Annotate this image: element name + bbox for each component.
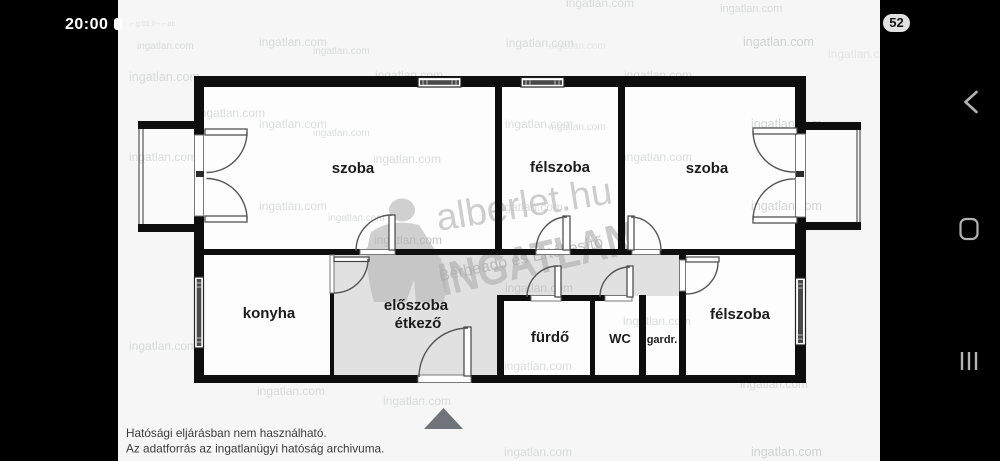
svg-text:ingatlan.com: ingatlan.com — [137, 41, 194, 52]
svg-text:ingatlan.com: ingatlan.com — [720, 3, 782, 15]
svg-text:ingatlan.com: ingatlan.com — [624, 150, 692, 164]
svg-text:ingatlan.com: ingatlan.com — [129, 70, 200, 84]
svg-text:félszoba: félszoba — [530, 159, 591, 176]
svg-text:ingatlan.com: ingatlan.com — [197, 106, 265, 120]
svg-text:Az adatforrás az ingatlanügyi: Az adatforrás az ingatlanügyi hatóság ar… — [126, 442, 384, 456]
svg-text:ingatlan.com: ingatlan.com — [751, 199, 822, 213]
svg-text:ingatlan.com: ingatlan.com — [751, 445, 822, 459]
svg-text:ingatlan.com: ingatlan.com — [504, 359, 572, 373]
svg-text:⌐ g:01.0¬ ⌐ ab: ⌐ g:01.0¬ ⌐ ab — [130, 21, 175, 28]
svg-text:előszoba: előszoba — [384, 297, 449, 314]
svg-text:félszoba: félszoba — [710, 306, 771, 323]
svg-text:konyha: konyha — [243, 305, 296, 322]
svg-text:Hatósági eljárásban nem haszná: Hatósági eljárásban nem használható. — [126, 426, 327, 440]
svg-text:étkező: étkező — [395, 315, 442, 332]
svg-text:ingatlan.com: ingatlan.com — [313, 46, 370, 57]
svg-text:szoba: szoba — [332, 160, 375, 177]
svg-text:ingatlan.com: ingatlan.com — [313, 128, 370, 139]
svg-text:ingatlan.com: ingatlan.com — [259, 199, 327, 213]
svg-text:ingatlan.com: ingatlan.com — [373, 152, 441, 166]
svg-text:ingatlan.com: ingatlan.com — [257, 384, 325, 398]
svg-text:gardr.: gardr. — [647, 334, 678, 346]
svg-text:ingatlan.com: ingatlan.com — [129, 339, 197, 353]
svg-text:ingatlan.com: ingatlan.com — [383, 394, 451, 408]
svg-text:ingatlan.com: ingatlan.com — [504, 445, 572, 459]
svg-text:fürdő: fürdő — [531, 329, 569, 346]
svg-text:ingatlan.com: ingatlan.com — [743, 35, 814, 49]
svg-text:ingatlan.com: ingatlan.com — [566, 0, 634, 10]
svg-text:ingatlan.com: ingatlan.com — [828, 47, 880, 61]
svg-text:szoba: szoba — [686, 160, 729, 177]
svg-text:WC: WC — [609, 331, 631, 346]
svg-text:ingatlan.com: ingatlan.com — [506, 36, 574, 50]
svg-text:ingatlan.com: ingatlan.com — [549, 122, 606, 133]
